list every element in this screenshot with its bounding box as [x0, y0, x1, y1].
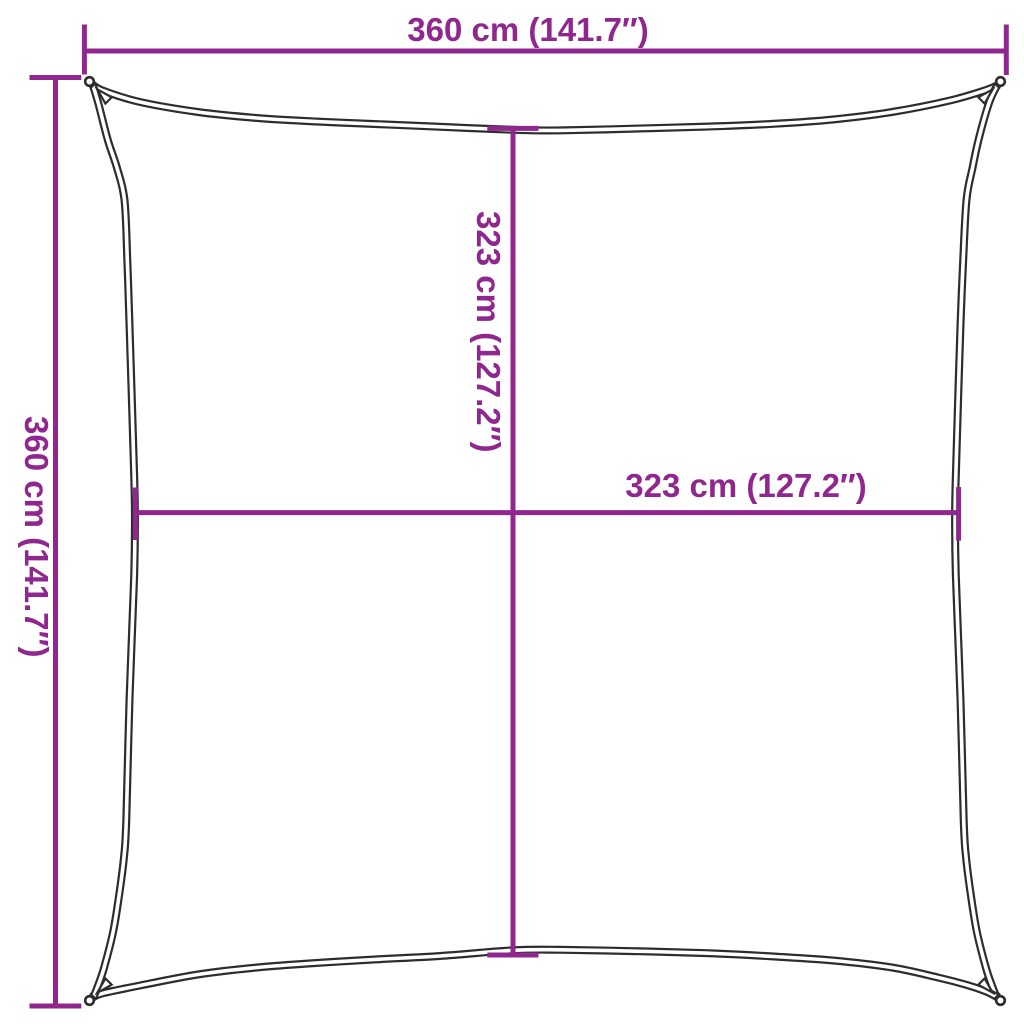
svg-text:323 cm (127.2″): 323 cm (127.2″) [625, 467, 866, 504]
svg-text:323 cm (127.2″): 323 cm (127.2″) [470, 211, 507, 452]
svg-text:360 cm (141.7″): 360 cm (141.7″) [18, 416, 55, 657]
svg-text:360 cm (141.7″): 360 cm (141.7″) [407, 11, 648, 48]
